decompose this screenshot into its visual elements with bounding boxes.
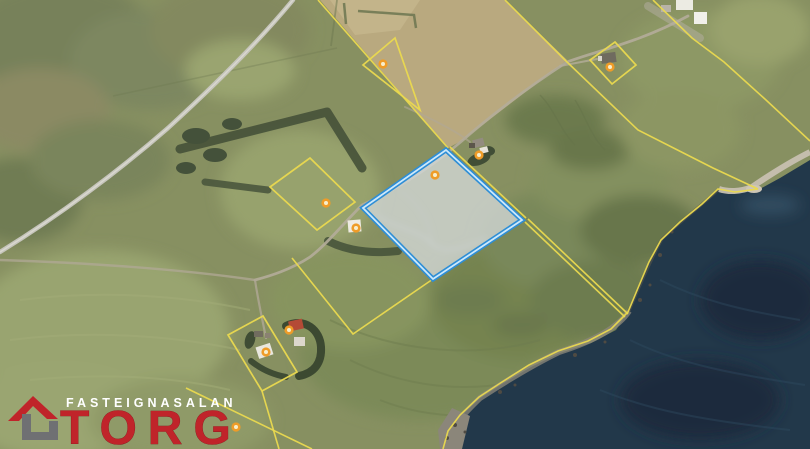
listing-map[interactable]: FASTEIGNASALAN TORG <box>0 0 810 449</box>
aerial-map-svg: FASTEIGNASALAN TORG <box>0 0 810 449</box>
marker-farm-ne[interactable] <box>474 150 483 159</box>
marker-center <box>477 153 481 157</box>
marker-highlighted-parcel[interactable] <box>430 170 439 179</box>
marker-center <box>433 173 437 177</box>
brand-name: TORG <box>60 402 242 449</box>
marker-farm-sw-red[interactable] <box>284 325 293 334</box>
marker-center <box>264 350 268 354</box>
marker-center <box>287 328 291 332</box>
marker-center <box>608 65 612 69</box>
marker-center <box>324 201 328 205</box>
building-diamond-parcel <box>600 52 616 64</box>
marker-center <box>381 62 385 66</box>
marker-triangle-parcel[interactable] <box>378 59 387 68</box>
marker-parcel-left[interactable] <box>321 198 330 207</box>
marker-building-mid[interactable] <box>351 223 360 232</box>
marker-diamond-parcel[interactable] <box>605 62 614 71</box>
marker-farm-sw-house[interactable] <box>261 347 270 356</box>
marker-center <box>354 226 358 230</box>
